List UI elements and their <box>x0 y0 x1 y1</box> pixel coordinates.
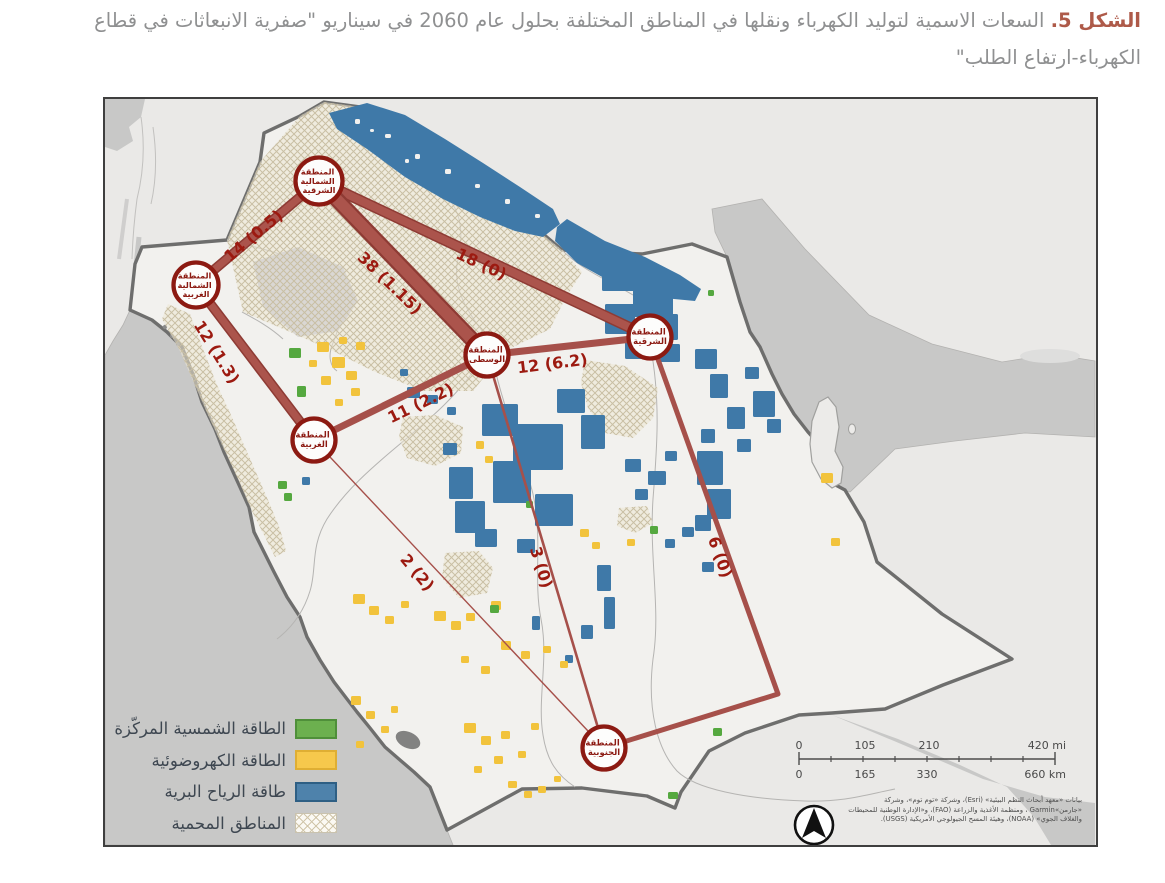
legend-label-protected: المناطق المحمية <box>172 814 286 833</box>
attribution-line: بيانات «معهد أبحاث النظم البيئية» (Esri)… <box>832 796 1082 806</box>
region-node-southern: المنطقة الجنوبية <box>583 727 626 770</box>
region-node-northwest: المنطقة الشمالية الغربية <box>174 263 219 308</box>
legend-label-csp: الطاقة الشمسية المركّزة <box>114 719 286 738</box>
legend-label-pv: الطاقة الكهروضوئية <box>151 751 286 770</box>
protected-areas-swatch-icon <box>295 813 337 833</box>
legend-row-protected: المناطق المحمية <box>111 808 337 840</box>
region-node-eastern: المنطقة الشرقية <box>629 316 672 359</box>
map-legend: الطاقة الشمسية المركّزة الطاقة الكهروضوئ… <box>111 713 337 839</box>
scale-km-2: 330 <box>917 768 938 781</box>
legend-row-wind: طاقة الرياح البرية <box>111 776 337 808</box>
svg-text:المنطقة الشرقية: المنطقة الشرقية <box>631 327 668 348</box>
attribution-line: والغلاف الجوي» (NOAA)، وهيئة المسح الجيو… <box>832 815 1082 825</box>
svg-text:المنطقة الشمالية: المنطقة الشمالية الشرقية <box>300 167 337 197</box>
svg-text:المنطقة الجنوبية: المنطقة الجنوبية <box>585 738 622 759</box>
strait-island <box>1020 349 1080 363</box>
legend-row-csp: الطاقة الشمسية المركّزة <box>111 713 337 745</box>
scale-km-0: 0 <box>796 768 803 781</box>
scale-mi-0: 0 <box>796 739 803 752</box>
scale-mi-3: 420 mi <box>1028 739 1066 752</box>
wind-swatch-icon <box>295 782 337 802</box>
scale-mi-1: 105 <box>855 739 876 752</box>
region-node-northeast: المنطقة الشمالية الشرقية <box>296 158 343 205</box>
legend-row-pv: الطاقة الكهروضوئية <box>111 745 337 777</box>
scale-km-1: 165 <box>855 768 876 781</box>
svg-text:المنطقة الشمالية: المنطقة الشمالية الغربية <box>177 271 214 301</box>
svg-text:المنطقة الوسطى: المنطقة الوسطى <box>468 345 505 366</box>
scale-km-3: 660 km <box>1024 768 1066 781</box>
pv-swatch-icon <box>295 750 337 770</box>
bahrain <box>849 424 856 434</box>
region-node-western: المنطقة الغربية <box>293 419 336 462</box>
scale-mi-2: 210 <box>919 739 940 752</box>
map-attribution: بيانات «معهد أبحاث النظم البيئية» (Esri)… <box>832 796 1082 825</box>
region-node-central: المنطقة الوسطى <box>466 334 509 377</box>
csp-swatch-icon <box>295 719 337 739</box>
figure-caption: الشكل 5. السعات الاسمية لتوليد الكهرباء … <box>24 2 1141 76</box>
figure-caption-text: السعات الاسمية لتوليد الكهرباء ونقلها في… <box>94 9 1141 69</box>
attribution-line: «جارمن»Garmin ، ومنظمة الأغذية والزراعة … <box>832 806 1082 816</box>
legend-label-wind: طاقة الرياح البرية <box>164 782 286 801</box>
figure-number: الشكل 5. <box>1051 9 1141 32</box>
map-panel: 14 (0.5) 38 (1.15) 18 (0) 12 (1.3) 12 (6… <box>103 97 1098 847</box>
svg-text:المنطقة الغربية: المنطقة الغربية <box>295 430 332 451</box>
north-arrow-icon <box>795 806 833 844</box>
